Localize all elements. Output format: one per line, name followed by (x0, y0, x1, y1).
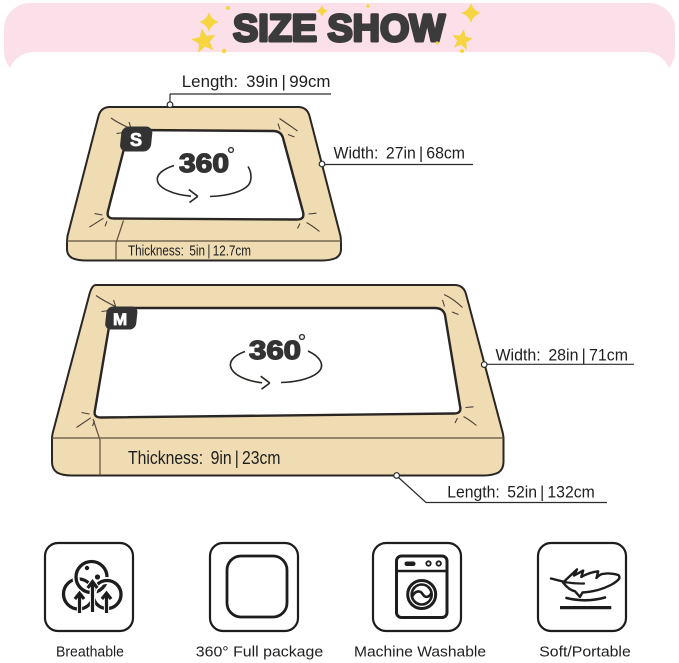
svg-text:S: S (130, 130, 142, 150)
svg-text:Width: 27in | 68cm: Width: 27in | 68cm (334, 144, 466, 163)
svg-text:Thickness: 9in | 23cm: Thickness: 9in | 23cm (128, 448, 281, 468)
svg-text:Machine Washable: Machine Washable (354, 645, 486, 661)
svg-text:Thickness: 5in | 12.7cm: Thickness: 5in | 12.7cm (128, 243, 251, 259)
svg-text:Length: 52in | 132cm: Length: 52in | 132cm (447, 482, 595, 501)
svg-text:SIZE SHOW: SIZE SHOW (233, 8, 445, 50)
svg-text:Length: 39in | 99cm: Length: 39in | 99cm (182, 72, 331, 91)
svg-text:360: 360 (249, 335, 301, 365)
svg-text:Width: 28in | 71cm: Width: 28in | 71cm (496, 346, 629, 365)
svg-text:M: M (113, 310, 127, 329)
svg-text:Soft/Portable: Soft/Portable (539, 645, 631, 661)
svg-text:360° Full package: 360° Full package (196, 645, 323, 661)
svg-text:360: 360 (179, 148, 229, 178)
svg-text:Breathable: Breathable (56, 645, 124, 661)
